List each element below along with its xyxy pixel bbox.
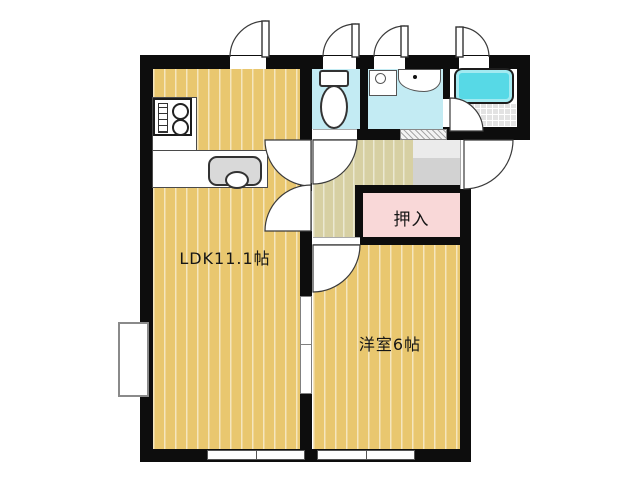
ldk-door-upper-swing <box>265 140 311 186</box>
washroom-top-door-leaf <box>401 26 408 57</box>
closet-label: 押入 <box>363 205 460 230</box>
western-room-label: 洋室6帖 <box>325 331 455 355</box>
toilet-top-door-arc <box>323 24 356 57</box>
toilet-door-swing <box>313 140 357 184</box>
ldk-door-lower-swing <box>265 185 311 231</box>
bath-top-door-leaf <box>456 27 463 57</box>
entrance-door-swing <box>464 140 513 189</box>
ldk-top-door-leaf <box>262 21 269 57</box>
western-room-door-swing <box>313 245 360 292</box>
door-swing-layer <box>0 0 640 480</box>
bath-door-swing <box>450 98 483 131</box>
toilet-top-door-leaf <box>352 24 359 57</box>
floor-plan: LDK11.1帖 洋室6帖 押入 <box>0 0 640 480</box>
ldk-top-door-arc <box>230 21 266 57</box>
ldk-label: LDK11.1帖 <box>150 245 300 269</box>
